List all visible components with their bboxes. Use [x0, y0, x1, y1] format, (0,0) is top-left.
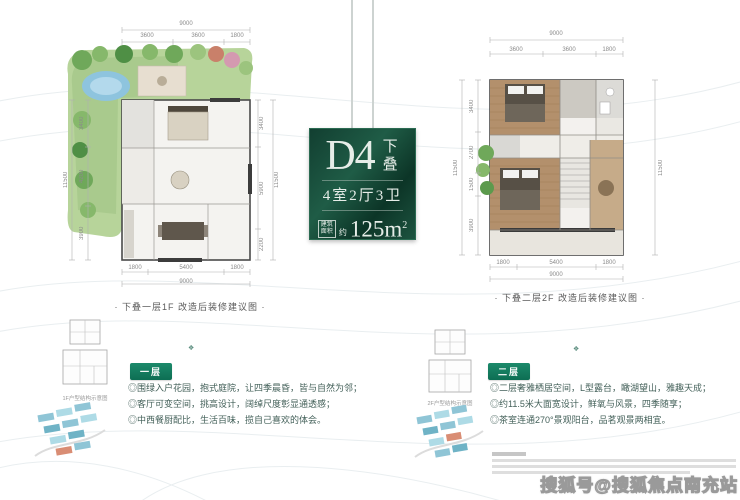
dining-table-graphic	[162, 222, 204, 240]
dim-label: 2200	[258, 231, 266, 257]
feature-item: ◎围绿入户花园，抱式庭院，让四季晨昏，皆与自然为邻；	[128, 380, 366, 396]
disclaimer-line	[492, 459, 736, 462]
dim-label: 3900	[468, 212, 476, 238]
feature-item: ◎约11.5米大面宽设计，鲜氧与风景，四季随享；	[490, 396, 732, 412]
dim-label: 5900	[258, 175, 266, 201]
structure-schematic-1f	[58, 318, 112, 392]
card-divider	[322, 180, 403, 181]
hanging-line	[351, 0, 353, 128]
disclaimer-heading-line	[492, 452, 526, 456]
floor-tag-1f: 一层	[130, 363, 172, 380]
ornament-icon: ❖	[573, 345, 579, 353]
tea-table-graphic	[598, 180, 614, 196]
dim-label: 3600	[186, 32, 210, 40]
dim-label: 5400	[544, 259, 568, 267]
caption-2f: · 下叠二层2F 改造后装修建议图 ·	[470, 291, 670, 304]
siteplan-thumb-1f	[33, 402, 107, 464]
dim-label: 2700	[468, 139, 476, 165]
dim-label: 11500	[657, 155, 665, 181]
dim-label: 1800	[225, 264, 249, 272]
features-2f: ◎二层奢雅栖居空间，L型露台，瞰湖望山，雅趣天成； ◎约11.5米大面宽设计，鲜…	[490, 380, 732, 428]
dim-label: 9000	[174, 278, 198, 286]
dim-label: 3600	[504, 46, 528, 54]
hanging-line	[372, 0, 374, 128]
dim-label: 3400	[468, 93, 476, 119]
area-label-line1: 建筑	[321, 222, 333, 229]
area-approx: 约	[339, 227, 347, 238]
card-divider	[322, 210, 403, 211]
area-number: 125m	[350, 217, 402, 242]
dim-label: 5400	[174, 264, 198, 272]
dim-label: 9000	[174, 20, 198, 28]
kitchen-counter-graphic	[124, 210, 134, 258]
area-value: 125m2	[350, 215, 407, 241]
feature-item: ◎中西餐厨配比，生活百味，揽自己喜欢的体会。	[128, 412, 366, 428]
unit-2f-graphic	[476, 80, 623, 255]
unit-1f-graphic	[122, 98, 252, 262]
floorplan-2f-drawing	[450, 18, 690, 303]
terrace-graphic	[490, 230, 623, 255]
caption-1f: · 下叠一层1F 改造后装修建议图 ·	[90, 300, 290, 313]
area-label-line2: 面积	[321, 229, 333, 236]
dim-label: 3600	[135, 32, 159, 40]
dim-label: 9000	[544, 271, 568, 279]
unit-model: D4	[325, 135, 374, 177]
siteplan-thumb-2f	[413, 405, 485, 465]
title-card: D4 下叠 4室2厅3卫 建筑 面积 约 125m2	[309, 128, 416, 240]
dim-label: 9000	[544, 30, 568, 38]
dim-label: 11500	[452, 155, 460, 181]
dim-label: 3400	[258, 110, 266, 136]
dim-label: 3400	[78, 110, 86, 136]
feature-item: ◎茶室连通270°景观阳台，品茗观景两相宜。	[490, 412, 732, 428]
structure-schematic-2f	[425, 328, 475, 398]
floorplan-poster: 9000 3600 3600 1800 11500 3400 4200 3900…	[0, 0, 740, 500]
area-label-box: 建筑 面积	[318, 220, 336, 238]
floor-tag-2f: 二层	[488, 363, 530, 380]
bed-headboard-graphic	[168, 106, 208, 112]
features-1f: ◎围绿入户花园，抱式庭院，让四季晨昏，皆与自然为邻； ◎客厅可变空间，挑高设计，…	[128, 380, 366, 428]
dim-label: 1800	[491, 259, 515, 267]
dim-label: 4200	[78, 163, 86, 189]
floorplan-1f-drawing	[58, 14, 293, 304]
bed-graphic	[500, 168, 540, 210]
dim-label: 3600	[557, 46, 581, 54]
dim-label: 11500	[62, 167, 70, 193]
feature-item: ◎客厅可变空间，挑高设计，阔绰尺度彰显通透感；	[128, 396, 366, 412]
round-table-graphic	[171, 171, 189, 189]
dim-label: 1800	[597, 259, 621, 267]
bed-graphic	[505, 84, 545, 122]
feature-item: ◎二层奢雅栖居空间，L型露台，瞰湖望山，雅趣天成；	[490, 380, 732, 396]
dim-label: 1800	[123, 264, 147, 272]
dim-label: 1800	[225, 32, 249, 40]
watermark: 搜狐号@搜狐焦点南充站	[540, 471, 738, 496]
area-exponent: 2	[402, 220, 407, 231]
unit-rooms: 4室2厅3卫	[310, 181, 415, 207]
bed-graphic	[168, 112, 208, 140]
schematic-label-1f: 1F户型结构示意图	[39, 393, 131, 401]
ornament-icon: ❖	[188, 344, 194, 352]
disclaimer-line	[492, 465, 736, 468]
dim-label: 11500	[273, 167, 281, 193]
dim-label: 1500	[468, 171, 476, 197]
unit-stack-type: 下叠	[379, 138, 400, 174]
dim-label: 1800	[597, 46, 621, 54]
dim-label: 3900	[78, 220, 86, 246]
